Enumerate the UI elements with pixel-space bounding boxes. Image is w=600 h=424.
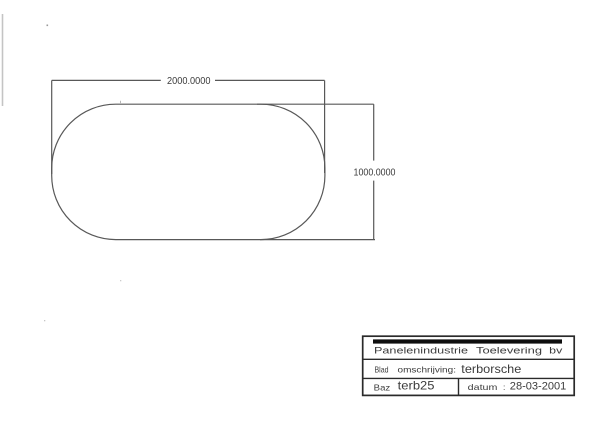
svg-text::: : bbox=[503, 382, 505, 392]
svg-text:Panelenindustrie: Panelenindustrie bbox=[374, 345, 468, 355]
svg-text:datum: datum bbox=[468, 382, 498, 392]
svg-text:Toelevering: Toelevering bbox=[476, 345, 542, 355]
svg-text:omschrijving:: omschrijving: bbox=[398, 365, 457, 375]
svg-text:bv: bv bbox=[549, 345, 563, 355]
svg-text:Blad: Blad bbox=[375, 365, 389, 375]
svg-text:terborsche: terborsche bbox=[461, 362, 521, 376]
svg-text:Baz: Baz bbox=[374, 382, 391, 392]
svg-text:28-03-2001: 28-03-2001 bbox=[510, 381, 567, 393]
svg-text:1000.0000: 1000.0000 bbox=[354, 167, 396, 178]
svg-text:2000.0000: 2000.0000 bbox=[167, 76, 211, 87]
svg-text:terb25: terb25 bbox=[398, 379, 435, 393]
